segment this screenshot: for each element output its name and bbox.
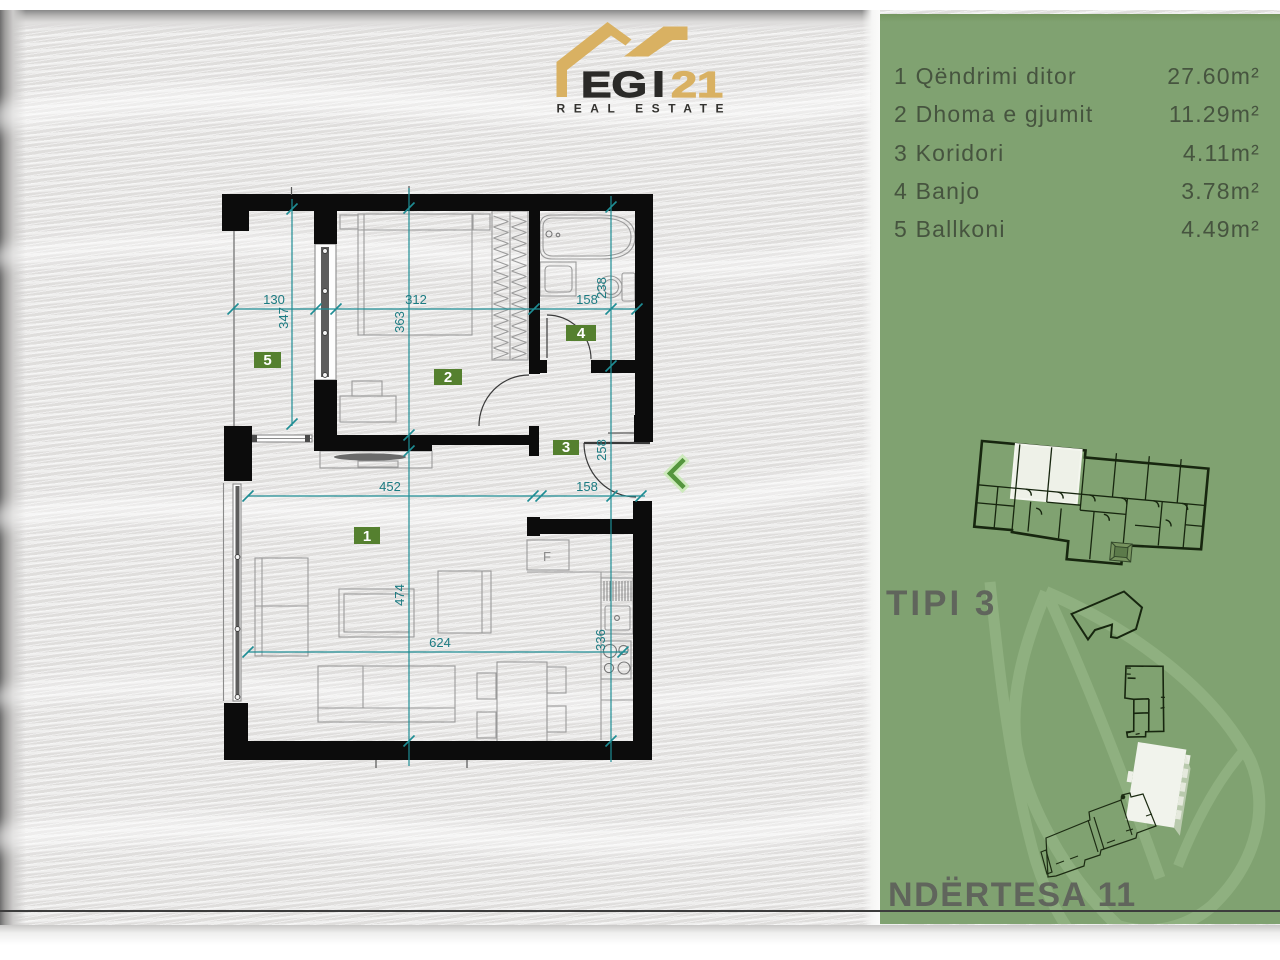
svg-text:EG: EG [581, 64, 647, 105]
svg-text:624: 624 [429, 635, 451, 650]
svg-text:258: 258 [594, 439, 609, 461]
svg-text:347: 347 [276, 307, 291, 329]
svg-text:452: 452 [379, 479, 401, 494]
svg-text:21: 21 [671, 64, 723, 105]
svg-text:F: F [543, 549, 551, 564]
svg-text:5: 5 [263, 352, 271, 369]
svg-text:130: 130 [263, 292, 285, 307]
svg-text:336: 336 [593, 629, 608, 651]
svg-text:158: 158 [576, 479, 598, 494]
svg-text:238: 238 [594, 277, 609, 299]
svg-text:1: 1 [363, 528, 371, 545]
svg-text:2: 2 [444, 369, 452, 386]
svg-text:312: 312 [405, 292, 427, 307]
svg-text:363: 363 [392, 311, 407, 333]
svg-text:3: 3 [562, 439, 570, 456]
svg-text:4: 4 [577, 325, 586, 342]
svg-text:474: 474 [392, 584, 407, 606]
